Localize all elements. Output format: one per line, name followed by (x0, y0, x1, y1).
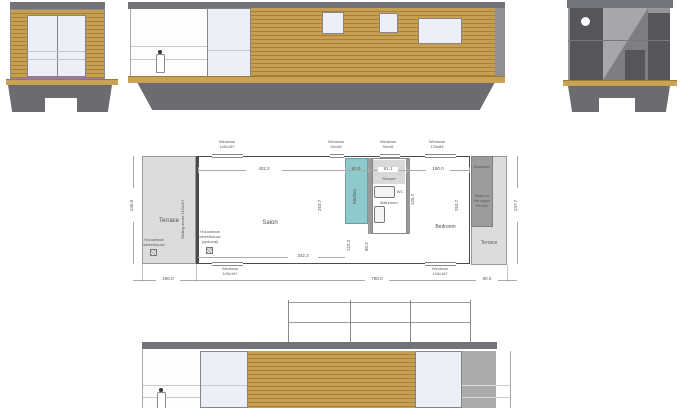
roof-band (10, 2, 105, 9)
door-rail-line (28, 51, 85, 52)
label-windows-top-right: Windows 123x84 (425, 140, 449, 150)
rear-panel-right (648, 13, 670, 80)
label-windows-bottom-right: Windows 140x167 (425, 267, 455, 277)
terrace-rail (143, 397, 200, 398)
dim-tick (406, 167, 407, 173)
dim-kitchen-lower: 122.2 (346, 230, 354, 260)
label-bathroom: Bathroom (373, 201, 405, 206)
label-kitchen: Kitchen (352, 180, 360, 212)
dim-left-height: 245.0 (129, 188, 137, 222)
label-wc: WC (394, 190, 406, 195)
dim-salon-height: 253.7 (317, 188, 325, 222)
terrace-rail (462, 385, 496, 386)
label-windows-top-kitchen: Windows 94x46 (324, 140, 348, 150)
shower-tray-fixture (374, 206, 385, 223)
dim-bath-width: 81.1 (378, 167, 398, 172)
glass-door (200, 351, 248, 408)
terrace-rail (462, 397, 496, 398)
window-small-2 (379, 13, 398, 33)
end-cap (495, 8, 505, 78)
roof-band (567, 0, 673, 8)
glass-door (207, 8, 251, 78)
person-figure-icon (157, 392, 166, 408)
dim-total-left: 190.0 (156, 277, 180, 282)
dim-tick (345, 167, 346, 173)
terrace-open (142, 349, 200, 408)
label-terrace-right: Terrace (477, 240, 501, 246)
dim-bath-height: 125.7 (410, 184, 418, 214)
label-windows-bottom-left: Windows 145x167 (215, 267, 245, 277)
window-opening (212, 154, 243, 158)
door-rail-line (208, 50, 250, 51)
wheelhouse-hatch (150, 249, 157, 256)
terrace-rail (496, 397, 510, 398)
wood-siding (248, 351, 415, 408)
dim-tick (198, 167, 199, 173)
rear-door-panel (570, 8, 603, 80)
label-salon: Salon (248, 220, 292, 227)
terrace-rail (131, 59, 207, 60)
dim-bedroom-height: 253.7 (454, 188, 462, 222)
dim-bedroom-width: 180.0 (426, 167, 450, 172)
roof-rail (288, 322, 470, 323)
elevation-side (128, 0, 512, 114)
person-figure-icon (156, 54, 165, 73)
deck-strip (6, 79, 118, 85)
window-small-1 (322, 12, 344, 34)
elevation-front (6, 2, 120, 114)
roof-rail-post (350, 300, 351, 343)
dim-terrace-right-height: 237.7 (513, 188, 521, 222)
roof-rail-post (288, 300, 289, 343)
dim-bath-lower: 80.2 (364, 232, 372, 262)
dim-total-mid: 780.0 (365, 277, 389, 282)
elevation-rear (563, 0, 677, 114)
label-shower: Shower (373, 177, 405, 182)
dim-total-right: 80.0 (476, 277, 498, 282)
dim-kitchen-width: 60.0 (347, 167, 365, 172)
terrace-rail (143, 385, 200, 386)
person-figure-icon (159, 388, 163, 392)
deck-strip (128, 76, 505, 83)
elevation-side-opposite (128, 300, 512, 408)
hull (568, 86, 670, 112)
hull (132, 83, 500, 110)
dim-line-salon-bottom (198, 257, 345, 258)
terrace-rail (131, 46, 207, 47)
label-staircase: Staircase (471, 165, 493, 170)
label-windows-top-bath: Windows 94x46 (376, 140, 400, 150)
deck-strip (563, 80, 677, 86)
label-windows-top-left: Windows 145x167 (212, 140, 242, 150)
rear-panel-small (625, 50, 645, 80)
door-rail-line (201, 385, 247, 386)
rear-terrace-end (496, 351, 511, 408)
window-opening (425, 154, 456, 158)
dim-salon-width: 402.2 (246, 167, 282, 172)
rear-facade (568, 8, 670, 80)
window-opening (330, 154, 344, 158)
label-wheelhouse: Houseboat wheelhouse (140, 238, 168, 248)
glass-door (27, 15, 86, 77)
hull-notch (599, 98, 635, 112)
bathtub-fixture (374, 186, 395, 198)
hull (8, 85, 112, 112)
label-stairs-note: Stairs to the upper terrace (472, 194, 493, 208)
terrace-rail (496, 385, 510, 386)
houseboat-drawing-sheet: Terrace Salon Kitchen Shower WC Bathroom… (0, 0, 680, 408)
glass-door (415, 351, 462, 408)
window-large (418, 18, 462, 44)
terrace-open (130, 9, 207, 77)
door-mullion (57, 16, 58, 76)
rear-rail-line (568, 40, 670, 41)
roof-rail (288, 302, 470, 303)
door-rail-line (28, 59, 85, 60)
dim-tick (368, 167, 369, 173)
rear-gray-section (462, 351, 496, 408)
label-sliding-doors: Sliding doors 215x197 (180, 183, 188, 255)
roof-rail-post (410, 300, 411, 343)
label-bedroom: Bedroom (423, 225, 468, 231)
dim-salon-bottom: 342.3 (288, 254, 318, 259)
plan-cabin (198, 156, 470, 264)
roof-rail-post (470, 300, 471, 343)
person-figure-icon (158, 50, 162, 54)
label-wheelhouse-optional: Houseboat wheelhouse (optional) (196, 230, 224, 244)
porthole-window (581, 17, 590, 26)
wheelhouse-hatch-optional (206, 247, 213, 254)
hull-notch (45, 98, 77, 112)
dim-tick (469, 167, 470, 173)
dim-line-bottom (133, 280, 517, 281)
floor-plan: Terrace Salon Kitchen Shower WC Bathroom… (128, 136, 558, 296)
roof-band (142, 342, 497, 349)
